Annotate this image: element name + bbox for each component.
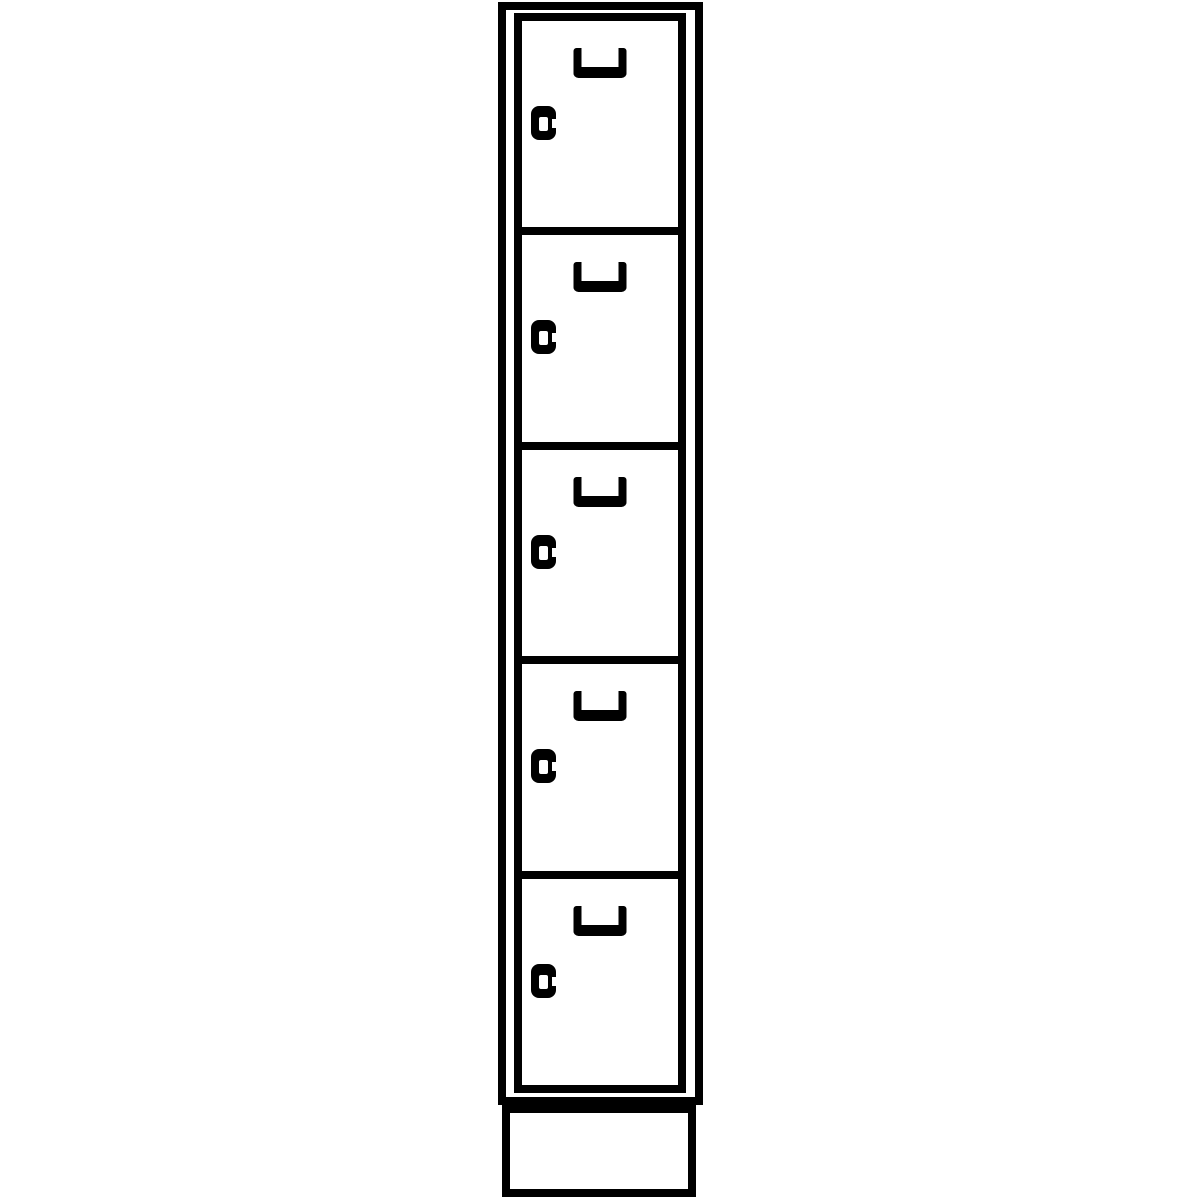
door-column (514, 13, 686, 1093)
u-handle-icon (574, 48, 627, 78)
locker-door (522, 871, 678, 1085)
keyhole-icon (539, 117, 548, 131)
cylinder-lock-icon (531, 535, 556, 569)
cylinder-lock-icon (531, 749, 556, 783)
lock-notch (552, 333, 556, 342)
lock-notch (552, 977, 556, 986)
u-handle-icon (574, 691, 627, 721)
cylinder-lock-icon (531, 320, 556, 354)
u-handle-icon (574, 262, 627, 292)
plinth-base (502, 1105, 696, 1197)
u-handle-icon (574, 906, 627, 936)
locker-door (522, 656, 678, 870)
keyhole-icon (539, 546, 548, 560)
u-handle-icon (574, 477, 627, 507)
cylinder-lock-icon (531, 106, 556, 140)
keyhole-icon (539, 975, 548, 989)
lock-notch (552, 119, 556, 128)
locker-diagram (0, 0, 1200, 1200)
cylinder-lock-icon (531, 964, 556, 998)
locker-door (522, 227, 678, 441)
lock-notch (552, 762, 556, 771)
locker-door (522, 442, 678, 656)
lock-notch (552, 548, 556, 557)
keyhole-icon (539, 331, 548, 345)
locker-door (522, 21, 678, 227)
keyhole-icon (539, 760, 548, 774)
